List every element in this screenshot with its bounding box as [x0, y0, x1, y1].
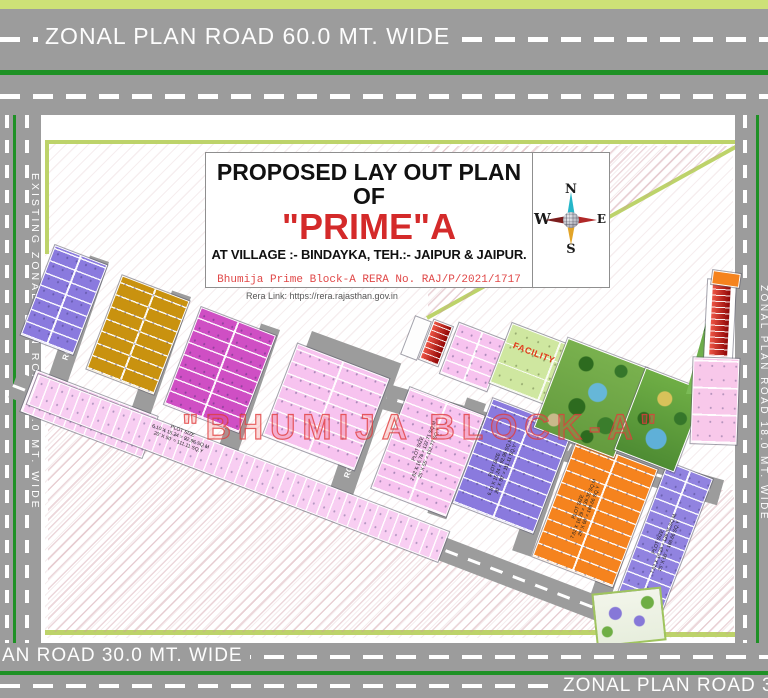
village-line: AT VILLAGE :- BINDAYKA, TEH.:- JAIPUR & …: [206, 247, 532, 262]
title-block: PROPOSED LAY OUT PLAN OF "PRIME"A AT VIL…: [205, 152, 610, 288]
watermark-text: "BHUMIJA BLOCK-A": [182, 408, 768, 448]
zonal-road-30-label-a: AN ROAD 30.0 MT. WIDE: [0, 646, 250, 667]
commercial-frame-right: [704, 279, 736, 360]
zonal-road-right-label: ZONAL PLAN ROAD 18.0 MT. WIDE: [758, 285, 768, 521]
zonal-road-60-band1: ZONAL PLAN ROAD 60.0 MT. WIDE: [0, 9, 768, 70]
zonal-road-60-band2: [0, 75, 768, 115]
compass-globe-icon: [563, 212, 579, 228]
edge-dash-line: [5, 115, 9, 643]
title-block-text: PROPOSED LAY OUT PLAN OF "PRIME"A AT VIL…: [206, 153, 532, 287]
compass-cell: N S E W: [532, 153, 609, 287]
compass-e-label: E: [597, 212, 606, 226]
compass-w-label: W: [534, 210, 551, 228]
boundary-left: [45, 140, 49, 254]
rera-number: Bhumija Prime Block-A RERA No. RAJ/P/202…: [206, 274, 532, 286]
commercial-strip-red-right: [709, 284, 731, 357]
top-edge-green-strip: [0, 0, 768, 9]
zonal-road-30-band1: AN ROAD 30.0 MT. WIDE: [0, 643, 768, 671]
zonal-road-60-label: ZONAL PLAN ROAD 60.0 MT. WIDE: [38, 24, 457, 49]
rera-link: Rera Link: https://rera.rajasthan.gov.in: [246, 291, 398, 301]
plan-title: PROPOSED LAY OUT PLAN OF: [206, 160, 532, 208]
layout-plan-canvas: ZONAL PLAN ROAD 60.0 MT. WIDE EXISTING Z…: [0, 0, 768, 698]
zonal-road-right: ZONAL PLAN ROAD 18.0 MT. WIDE: [735, 115, 768, 675]
boundary-top: [45, 140, 735, 144]
zonal-road-30-label-b: ZONAL PLAN ROAD 30.0 M: [556, 676, 768, 697]
zonal-road-30-band2: ZONAL PLAN ROAD 30.0 M: [0, 675, 768, 698]
center-dash-line: [0, 94, 768, 99]
project-name: "PRIME"A: [206, 208, 532, 246]
edge-dash-line: [743, 115, 747, 675]
detail-sketch-bottom: [591, 586, 666, 647]
compass-rose: N S E W: [536, 185, 606, 255]
